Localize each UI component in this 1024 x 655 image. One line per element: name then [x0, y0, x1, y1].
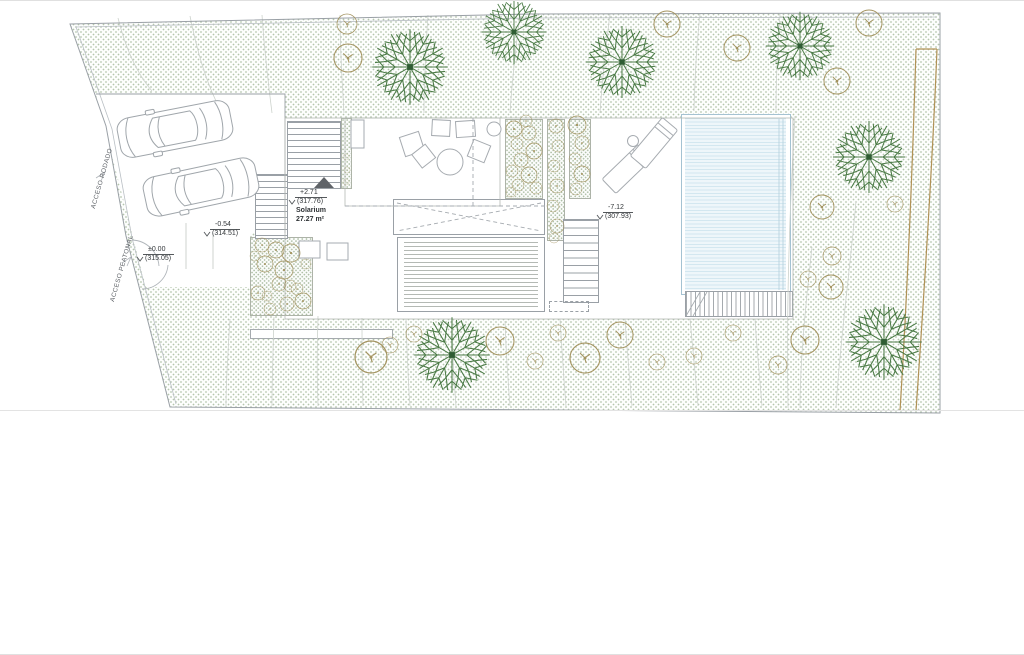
solarium-label: Solarium 27.27 m²	[296, 207, 326, 224]
tree-circle-icon	[406, 326, 422, 342]
bush-icon	[291, 283, 303, 295]
bush-icon	[574, 166, 590, 182]
contour-line	[505, 321, 510, 406]
tree-circle-icon	[823, 247, 841, 265]
tree-circle-icon	[856, 10, 882, 36]
level-datum: (307.93)	[605, 213, 631, 221]
level-value: ±0.00	[143, 246, 174, 255]
bush-icon	[506, 121, 522, 137]
bush-icon	[522, 126, 536, 140]
tree-circle-icon	[550, 325, 566, 341]
side-table	[487, 122, 501, 136]
pool-side-table	[628, 136, 639, 147]
garden-path	[900, 49, 916, 411]
car-icon	[140, 152, 261, 222]
site-plan-canvas: ACCESO RODADO ACCESO PEATONAL +2.71 (317…	[0, 0, 1024, 655]
garden-path-lines	[900, 49, 937, 411]
contour-line	[836, 201, 856, 408]
tree-circle-icon	[334, 44, 362, 72]
armchair-1	[432, 120, 451, 137]
tree-icon	[412, 315, 491, 394]
tree-circle-icon	[724, 35, 750, 61]
tree-circle-icon	[810, 195, 834, 219]
tree-circle-icon	[486, 327, 514, 355]
bush-icon	[255, 238, 269, 252]
contour-line	[262, 15, 272, 113]
spot-level-pool: -7.12 (307.93)	[596, 204, 633, 221]
contour-line	[600, 14, 610, 113]
level-mark-icon	[596, 214, 604, 220]
tree-icon	[844, 302, 923, 381]
contour-line	[510, 14, 520, 113]
contour-line	[560, 319, 566, 406]
bush-icon	[552, 140, 564, 152]
bush-icon	[548, 160, 560, 172]
contour-line	[625, 319, 632, 406]
bush-icon	[550, 219, 564, 233]
level-mark-icon	[136, 256, 144, 262]
bush-icon	[343, 154, 349, 160]
contour-line	[424, 15, 428, 113]
bush-icon	[514, 153, 528, 167]
contour-line	[406, 319, 410, 406]
table-solarium-2	[327, 243, 348, 260]
tree-circle-icon	[382, 337, 398, 353]
planter-box	[351, 120, 364, 148]
bush-icon	[547, 200, 559, 212]
level-value: -0.54	[210, 221, 240, 230]
bush-icon	[343, 179, 349, 185]
garden-path	[916, 49, 937, 411]
bush-icon	[262, 291, 272, 301]
spot-level-entry: ±0.00 (315.05)	[136, 246, 174, 263]
contour-line	[452, 321, 456, 406]
level-datum: (314.51)	[212, 230, 238, 238]
table-solarium-1	[299, 241, 320, 258]
contour-line	[317, 316, 318, 406]
bush-icon	[295, 293, 311, 309]
level-value: -7.12	[603, 204, 633, 213]
bush-icon	[521, 167, 537, 183]
bush-icon	[520, 115, 532, 127]
entry-gate-arc-2	[142, 265, 168, 289]
spot-level-terrace: +2.71 (317.76)	[288, 189, 327, 206]
tree-icon	[480, 1, 548, 66]
trees	[334, 1, 924, 395]
bush-icon	[301, 259, 311, 269]
tree-circle-icon	[791, 326, 819, 354]
bush-icon	[280, 297, 294, 311]
spot-level-garage: -0.54 (314.51)	[203, 221, 240, 238]
bush-icon	[275, 261, 293, 279]
tree-icon	[764, 10, 836, 82]
armchair-2	[455, 120, 475, 137]
level-mark-icon	[203, 231, 211, 237]
contour-line	[694, 14, 700, 111]
contour-line	[340, 15, 344, 113]
level-mark-icon	[288, 199, 296, 205]
bush-icon	[549, 233, 559, 243]
contour-line	[190, 16, 216, 101]
tree-circle-icon	[725, 325, 741, 341]
bush-icon	[549, 119, 563, 133]
bush-icon	[511, 138, 523, 150]
contour-line	[226, 319, 230, 406]
tree-circle-icon	[527, 353, 543, 369]
bush-icon	[272, 277, 286, 291]
level-datum: (315.05)	[145, 255, 171, 263]
level-datum: (317.76)	[297, 198, 323, 206]
contour-line	[118, 18, 152, 91]
bush-icon	[530, 182, 542, 194]
tree-circle-icon	[654, 11, 680, 37]
bush-icon	[526, 143, 542, 159]
bush-icon	[506, 165, 518, 177]
sun-loungers	[602, 117, 678, 193]
room-name: Solarium	[296, 207, 326, 216]
level-value: +2.71	[295, 189, 327, 198]
tree-circle-icon	[824, 68, 850, 94]
bush-icon	[569, 153, 581, 165]
skylight-cross	[397, 203, 541, 231]
tree-circle-icon	[607, 322, 633, 348]
tree-icon	[831, 119, 906, 194]
tree-circle-icon	[570, 343, 600, 373]
plan-linework	[0, 1, 1024, 655]
bush-icon	[568, 116, 586, 134]
bush-icon	[250, 251, 260, 261]
tree-circle-icon	[769, 356, 787, 374]
tree-icon	[584, 24, 659, 99]
contour-line	[272, 317, 274, 406]
contour-lines	[118, 14, 856, 408]
contour-line	[690, 319, 698, 406]
bush-icon	[264, 303, 276, 315]
bush-icon	[506, 187, 516, 197]
car-icon	[115, 95, 236, 163]
bush-icon	[575, 136, 589, 150]
contour-line	[787, 116, 795, 408]
bush-icon	[268, 242, 284, 258]
tree-circle-icon	[649, 354, 665, 370]
bush-icon	[570, 183, 582, 195]
room-area: 27.27 m²	[296, 216, 326, 225]
round-table	[437, 149, 463, 175]
tree-circle-icon	[819, 275, 843, 299]
pool-edge-lines	[779, 119, 783, 290]
stairs-direction-arrow	[314, 177, 334, 188]
chair-rotated-3	[467, 139, 490, 162]
bush-icon	[512, 179, 524, 191]
tree-icon	[370, 27, 449, 106]
contour-line	[362, 318, 363, 406]
tree-circle-icon	[887, 196, 903, 212]
parked-cars	[115, 95, 262, 222]
deck-corner-diagonal	[686, 292, 707, 316]
bush-icon	[550, 179, 564, 193]
contour-line	[755, 319, 762, 406]
